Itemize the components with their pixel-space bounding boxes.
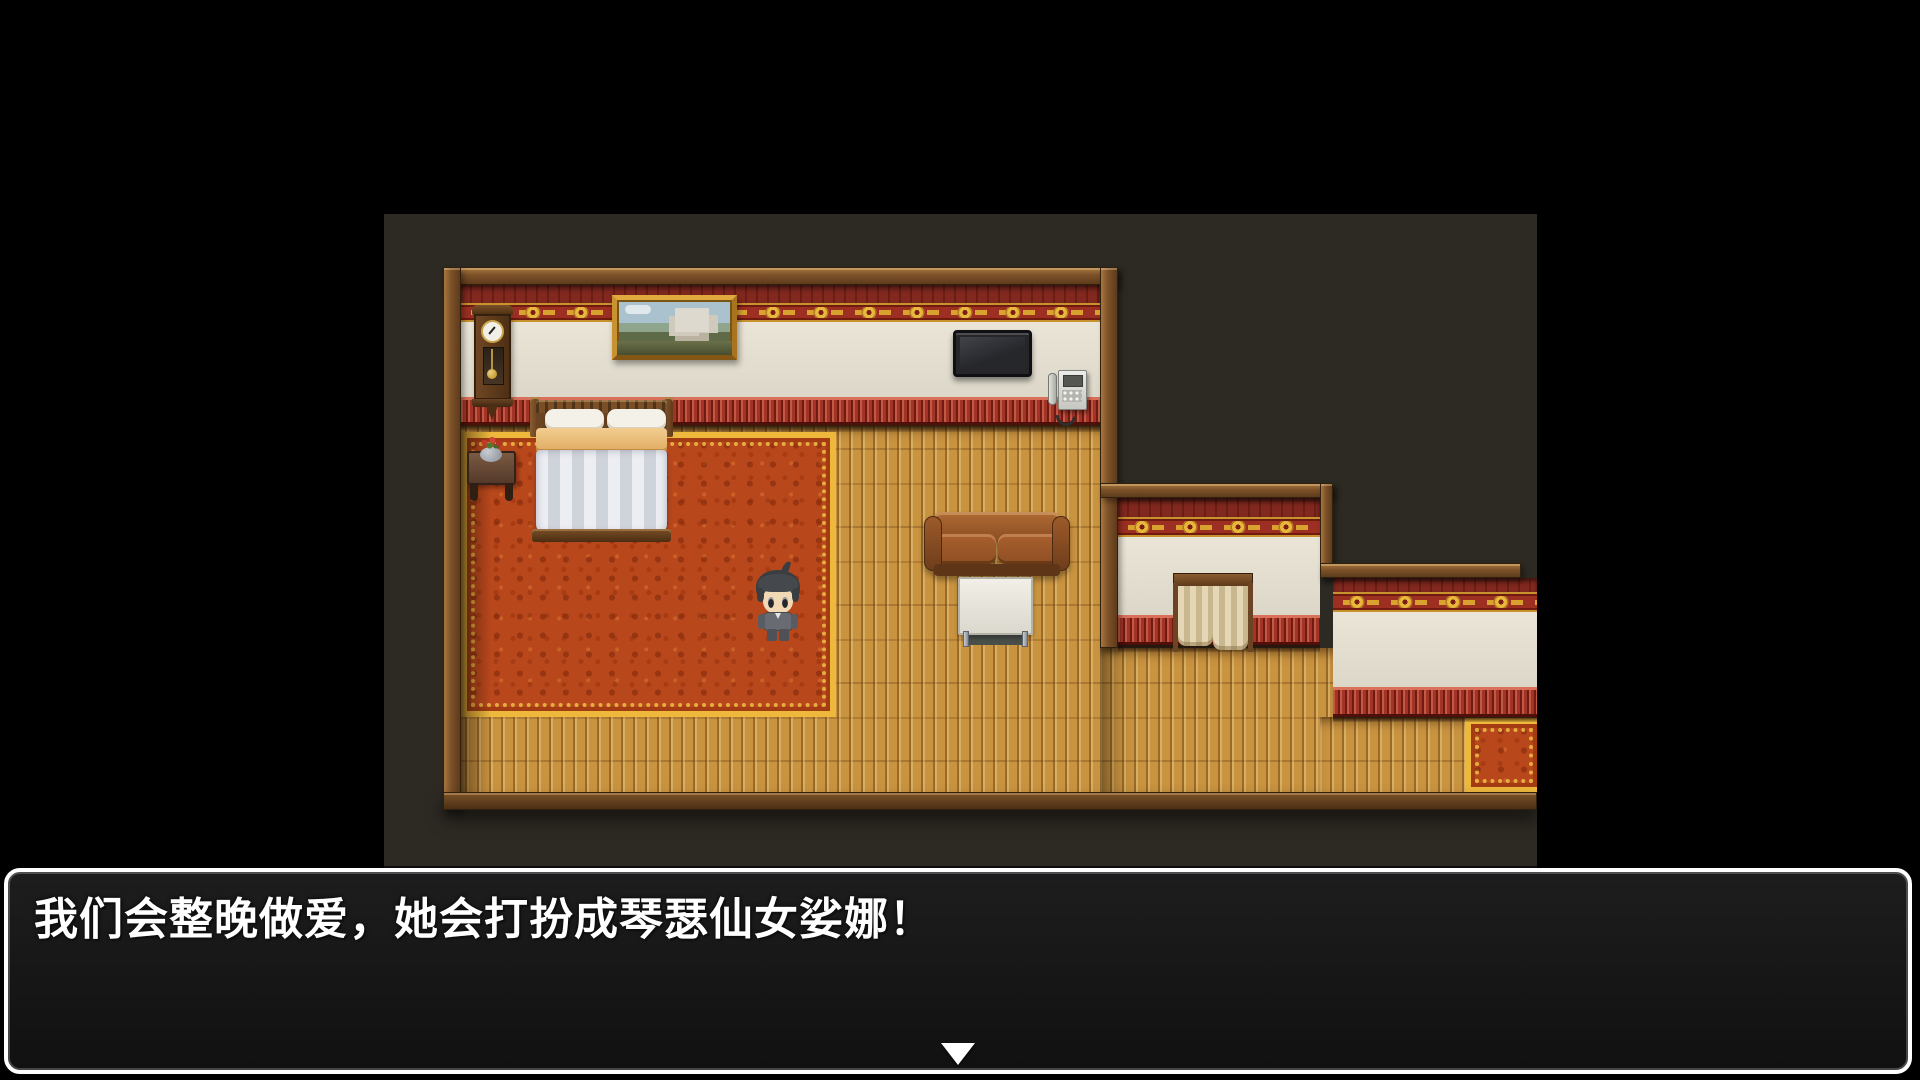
door-curtain: [1213, 586, 1248, 650]
door-curtain: [1178, 586, 1213, 646]
sofa-arm: [1052, 516, 1070, 571]
character-arm: [758, 614, 765, 629]
character-arm: [791, 614, 798, 629]
character-eye: [768, 597, 774, 608]
wallpaper-frieze: [1118, 517, 1320, 537]
wall-wainscot: [1333, 687, 1537, 717]
wall-top-band: [461, 283, 1100, 303]
bed-footboard: [532, 529, 671, 542]
door-jamb: [1248, 583, 1253, 652]
phone-keypad: [1062, 390, 1082, 402]
wall-phone: [1048, 370, 1087, 417]
flower-pot: [480, 447, 502, 462]
nightstand-leg: [505, 483, 513, 501]
sofa-arm: [924, 516, 942, 571]
wall-clock: [472, 305, 513, 425]
character-eye: [782, 597, 788, 608]
wood-floor-hallway: [1100, 648, 1333, 795]
sofa-cushion: [936, 534, 996, 564]
flat-tv: [953, 330, 1032, 377]
door-lintel: [1173, 573, 1253, 587]
white-table: [958, 577, 1033, 648]
character-leg: [767, 629, 777, 641]
dialogue-window[interactable]: 我们会整晚做爱，她会打扮成琴瑟仙女娑娜！: [4, 868, 1912, 1074]
double-bed: [530, 397, 673, 545]
tv-screen: [960, 337, 1025, 370]
hallway-frame-top: [1100, 483, 1333, 498]
leather-sofa: [924, 512, 1070, 580]
continue-arrow-icon[interactable]: [941, 1043, 975, 1065]
nightstand-leg: [470, 483, 478, 501]
room-frame-right: [1100, 267, 1118, 648]
wallpaper-frieze: [1333, 592, 1537, 612]
carpet-border-pattern: [1475, 728, 1533, 783]
room-frame-left: [443, 267, 461, 810]
clock-pendulum-window: [483, 347, 504, 385]
clock-finial: [486, 406, 498, 420]
nightstand: [467, 437, 516, 505]
painting-hill: [617, 341, 732, 355]
room-frame-top: [443, 267, 1118, 285]
right-room-wall: [1333, 578, 1537, 722]
character-leg: [779, 629, 789, 641]
player-character: [755, 566, 801, 642]
phone-display: [1063, 375, 1083, 387]
door-jamb: [1173, 583, 1178, 652]
right-room-frame-top: [1320, 563, 1521, 578]
dialogue-text: 我们会整晚做爱，她会打扮成琴瑟仙女娑娜！: [34, 892, 1882, 947]
character-hair-tuft: [792, 588, 799, 602]
pendulum-bob: [487, 369, 497, 379]
red-flowers: [478, 435, 504, 449]
wall-base-shadow: [1333, 717, 1537, 722]
wall-plaster: [1333, 612, 1537, 687]
painting-cloud: [625, 305, 651, 314]
pendulum-rod: [491, 349, 493, 371]
landscape-painting: [612, 295, 737, 360]
small-red-carpet: [1465, 718, 1537, 793]
table-leg: [963, 631, 969, 647]
phone-handset: [1048, 373, 1057, 405]
painting-castle: [675, 308, 709, 332]
wallpaper-frieze: [461, 303, 1100, 322]
table-top: [958, 577, 1033, 635]
game-viewport[interactable]: [384, 214, 1537, 869]
wall-top-band: [1333, 578, 1537, 592]
wall-top-band: [1118, 498, 1320, 517]
character-hair-tuft: [757, 588, 764, 602]
sofa-base: [934, 564, 1060, 576]
table-leg: [1022, 631, 1028, 647]
curtained-doorway: [1173, 573, 1253, 652]
sofa-cushion: [998, 534, 1058, 564]
clock-face: [481, 320, 504, 343]
room-frame-bottom: [443, 792, 1537, 810]
bed-duvet: [536, 450, 667, 534]
